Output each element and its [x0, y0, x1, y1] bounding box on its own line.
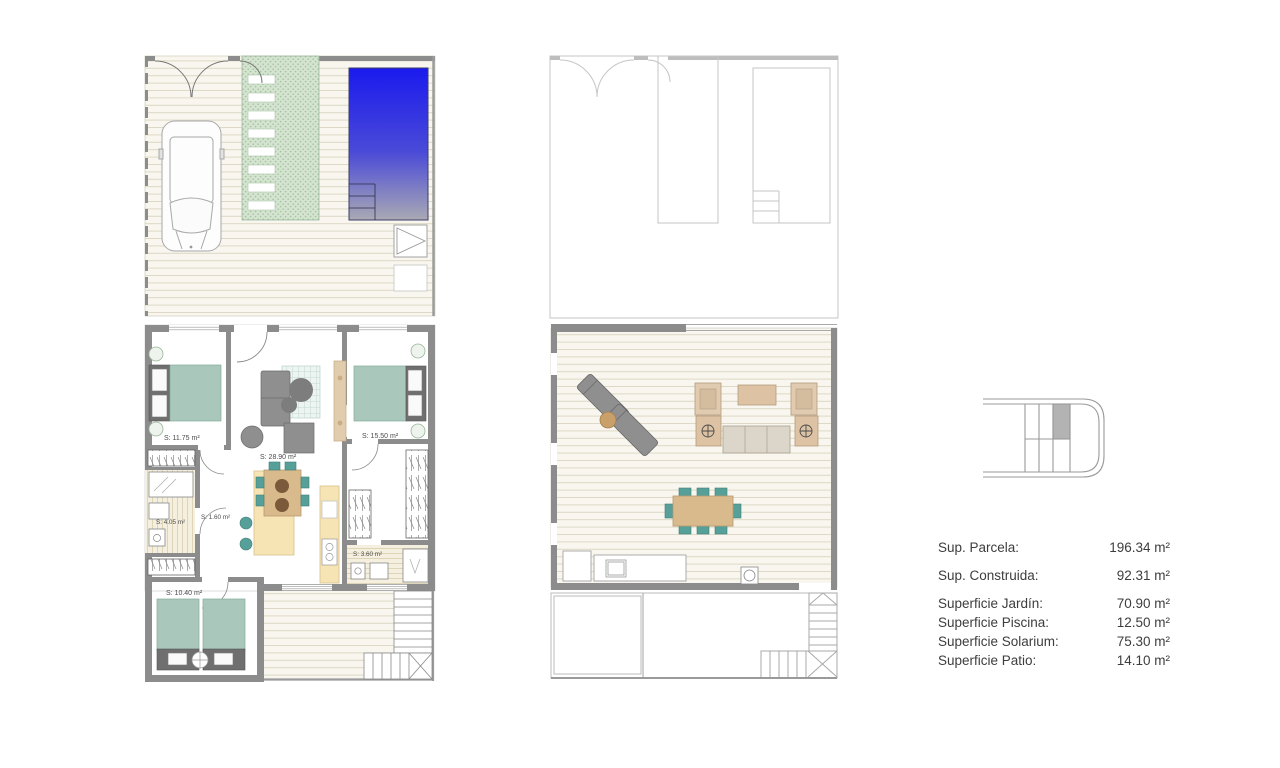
room-label: S: 1.60 m² — [201, 514, 230, 521]
ghost-pool — [753, 68, 830, 223]
house-interior: S: 11.75 m² S: 28.90 m² S: 15.50 m² — [145, 325, 435, 682]
legend-value: 92.31 m² — [1117, 566, 1170, 585]
legend-row-piscina: Superficie Piscina: 12.50 m² — [938, 613, 1170, 632]
ground-floor-plan: S: 11.75 m² S: 28.90 m² S: 15.50 m² — [142, 53, 440, 689]
floor-drain — [741, 567, 758, 584]
wardrobe — [148, 559, 195, 575]
ghost-garden-outline — [550, 56, 838, 318]
plant — [149, 347, 163, 361]
legend-label: Superficie Piscina: — [938, 613, 1049, 632]
wardrobe — [406, 450, 428, 538]
stool — [240, 517, 252, 529]
wall — [551, 583, 837, 590]
room-label: S: 10.40 m² — [166, 590, 203, 597]
plant — [411, 424, 425, 438]
ghost-staircase — [761, 593, 837, 678]
side-table — [281, 397, 297, 413]
legend-value: 14.10 m² — [1117, 651, 1170, 670]
outdoor-shower — [394, 225, 427, 257]
bedroom-3: S: 10.40 m² — [157, 590, 245, 670]
place-setting — [275, 479, 289, 493]
parked-car — [159, 121, 224, 251]
legend-value: 12.50 m² — [1117, 613, 1170, 632]
twin-bed — [203, 599, 245, 670]
room-label: S: 3.60 m² — [353, 551, 382, 558]
double-bed — [170, 365, 221, 421]
armchair — [284, 423, 314, 453]
legend-label: Sup. Construida: — [938, 566, 1039, 585]
wardrobe — [349, 490, 371, 538]
sink — [149, 503, 169, 519]
legend-label: Superficie Solarium: — [938, 632, 1059, 651]
garden-path — [240, 56, 319, 220]
plant — [411, 344, 425, 358]
room-label: S: 15.50 m² — [362, 433, 399, 440]
legend-row-patio: Superficie Patio: 14.10 m² — [938, 651, 1170, 670]
highlighted-unit — [1053, 404, 1070, 439]
wall — [551, 324, 686, 332]
stove — [322, 539, 337, 565]
outdoor-sofa — [723, 426, 790, 453]
equipment-box — [394, 265, 427, 291]
garden — [145, 56, 435, 316]
legend-value: 70.90 m² — [1117, 594, 1170, 613]
key-plan-icon — [983, 393, 1119, 485]
kitchen-sink — [322, 501, 337, 518]
legend-label: Sup. Parcela: — [938, 538, 1019, 557]
bathroom-2: S: 3.60 m² — [347, 545, 428, 584]
ghost-patio-outline — [551, 593, 837, 678]
wall — [831, 328, 837, 588]
wall-right — [428, 325, 435, 591]
legend-row-jardin: Superficie Jardín: 70.90 m² — [938, 594, 1170, 613]
room-label: S: 4.05 m² — [156, 519, 185, 526]
solarium — [551, 324, 837, 590]
sink — [370, 563, 388, 579]
double-bed — [354, 366, 406, 421]
area-legend: Sup. Parcela: 196.34 m² Sup. Construida:… — [938, 538, 1170, 670]
sideboard — [334, 361, 346, 441]
legend-row-parcela: Sup. Parcela: 196.34 m² — [938, 538, 1170, 557]
ghost-path — [658, 56, 718, 223]
dining-table — [673, 496, 733, 526]
side-table — [600, 412, 616, 428]
legend-value: 75.30 m² — [1117, 632, 1170, 651]
toilet — [351, 563, 365, 579]
room-label: S: 11.75 m² — [164, 435, 200, 442]
legend-row-construida: Sup. Construida: 92.31 m² — [938, 566, 1170, 585]
solarium-counter — [563, 551, 686, 581]
place-setting — [275, 498, 289, 512]
legend-label: Superficie Jardín: — [938, 594, 1043, 613]
pouf — [241, 426, 263, 448]
swimming-pool — [349, 68, 428, 220]
upper-floor-plan — [546, 53, 844, 685]
table — [738, 385, 776, 405]
boundary-wall — [228, 56, 240, 61]
stool — [240, 538, 252, 550]
legend-value: 196.34 m² — [1109, 538, 1170, 557]
toilet — [149, 529, 165, 546]
kitchen-counter — [320, 486, 339, 583]
bathtub — [149, 472, 193, 497]
wardrobe — [148, 450, 195, 466]
room-label: S: 28.90 m² — [260, 454, 297, 461]
legend-row-solarium: Superficie Solarium: 75.30 m² — [938, 632, 1170, 651]
legend-label: Superficie Patio: — [938, 651, 1036, 670]
plant — [149, 422, 163, 436]
bathtub — [403, 549, 428, 582]
